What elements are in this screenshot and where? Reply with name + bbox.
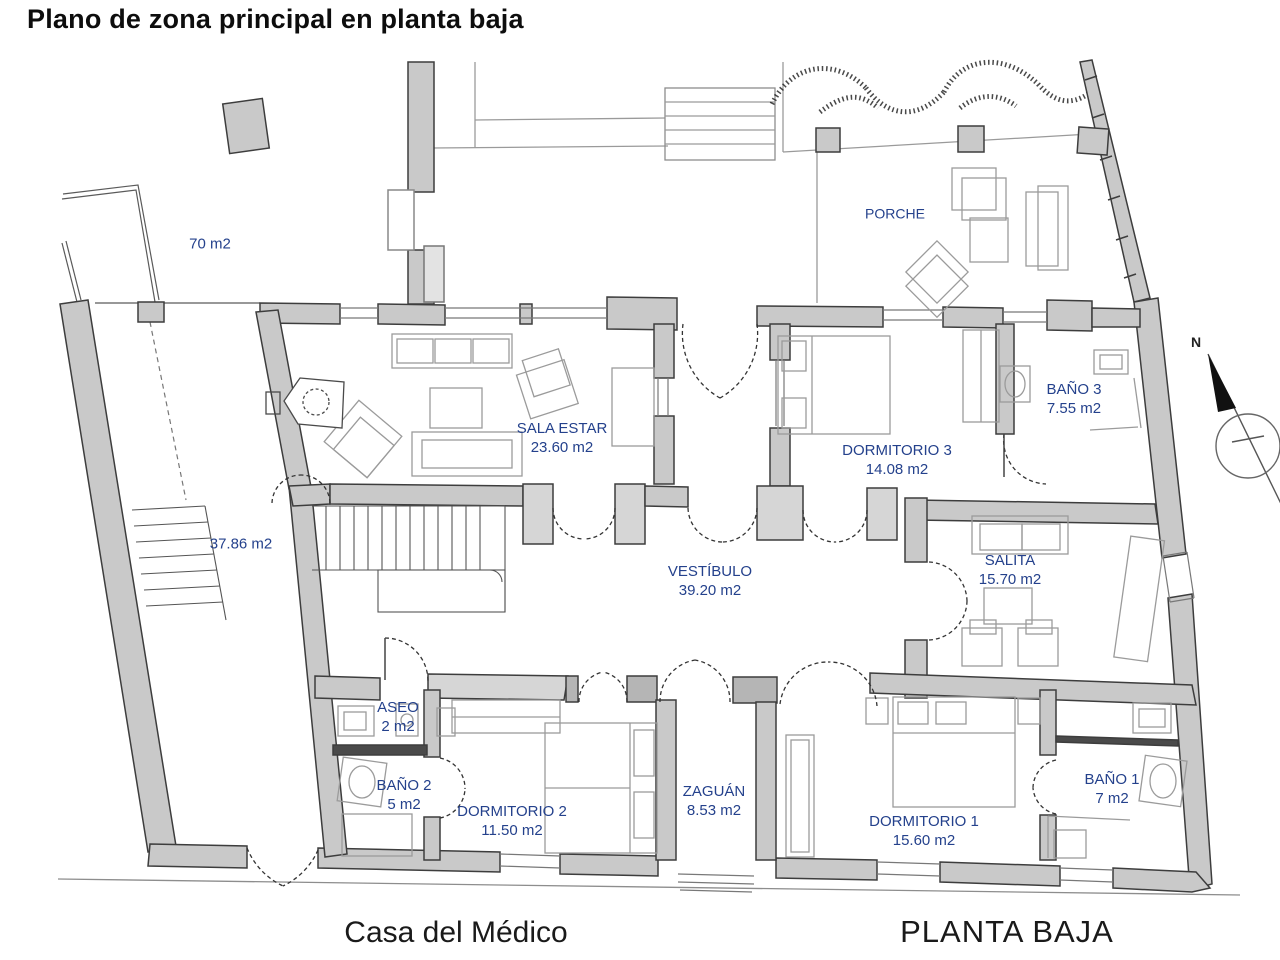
room-label-sala-estar: SALA ESTAR 23.60 m2 [517,419,608,457]
room-name: DORMITORIO 2 [457,802,567,821]
compass-north-label: N [1191,334,1201,350]
garden-site-lines [58,62,1240,895]
room-label-aseo: ASEO 2 m2 [377,698,419,736]
room-name: BAÑO 3 [1046,380,1101,399]
room-label-patio-37: 37.86 m2 [210,535,273,554]
room-name: DORMITORIO 3 [842,441,952,460]
room-area: 37.86 m2 [210,535,273,554]
room-name: SALITA [979,551,1042,570]
room-area: 8.53 m2 [683,801,746,820]
room-area: 70 m2 [189,235,231,254]
room-label-patio-70: 70 m2 [189,235,231,254]
room-label-salita: SALITA 15.70 m2 [979,551,1042,589]
floor-plan-drawing [0,0,1280,960]
room-label-dormitorio-3: DORMITORIO 3 14.08 m2 [842,441,952,479]
room-name: PORCHE [865,205,925,224]
exterior-walls [60,60,1212,892]
room-label-bano-3: BAÑO 3 7.55 m2 [1046,380,1101,418]
room-area: 15.70 m2 [979,570,1042,589]
room-name: SALA ESTAR [517,419,608,438]
room-area: 2 m2 [377,717,419,736]
room-area: 15.60 m2 [869,831,979,850]
room-area: 14.08 m2 [842,460,952,479]
room-label-vestibulo: VESTÍBULO 39.20 m2 [668,562,752,600]
floor-plan-page: Plano de zona principal en planta baja [0,0,1280,960]
room-name: ZAGUÁN [683,782,746,801]
room-label-porche: PORCHE [865,205,925,224]
room-label-dormitorio-1: DORMITORIO 1 15.60 m2 [869,812,979,850]
room-name: ASEO [377,698,419,717]
room-name: BAÑO 2 [376,776,431,795]
room-area: 7.55 m2 [1046,399,1101,418]
room-label-bano-1: BAÑO 1 7 m2 [1084,770,1139,808]
caption-building-name: Casa del Médico [344,916,567,950]
room-name: DORMITORIO 1 [869,812,979,831]
room-label-dormitorio-2: DORMITORIO 2 11.50 m2 [457,802,567,840]
room-area: 39.20 m2 [668,581,752,600]
room-name: VESTÍBULO [668,562,752,581]
compass-north-icon [1208,354,1280,514]
room-label-bano-2: BAÑO 2 5 m2 [376,776,431,814]
caption-floor-name: PLANTA BAJA [900,914,1114,950]
tree-canopy [772,62,1088,112]
room-area: 7 m2 [1084,789,1139,808]
room-area: 23.60 m2 [517,438,608,457]
room-area: 11.50 m2 [457,821,567,840]
room-name: BAÑO 1 [1084,770,1139,789]
room-area: 5 m2 [376,795,431,814]
room-label-zaguan: ZAGUÁN 8.53 m2 [683,782,746,820]
